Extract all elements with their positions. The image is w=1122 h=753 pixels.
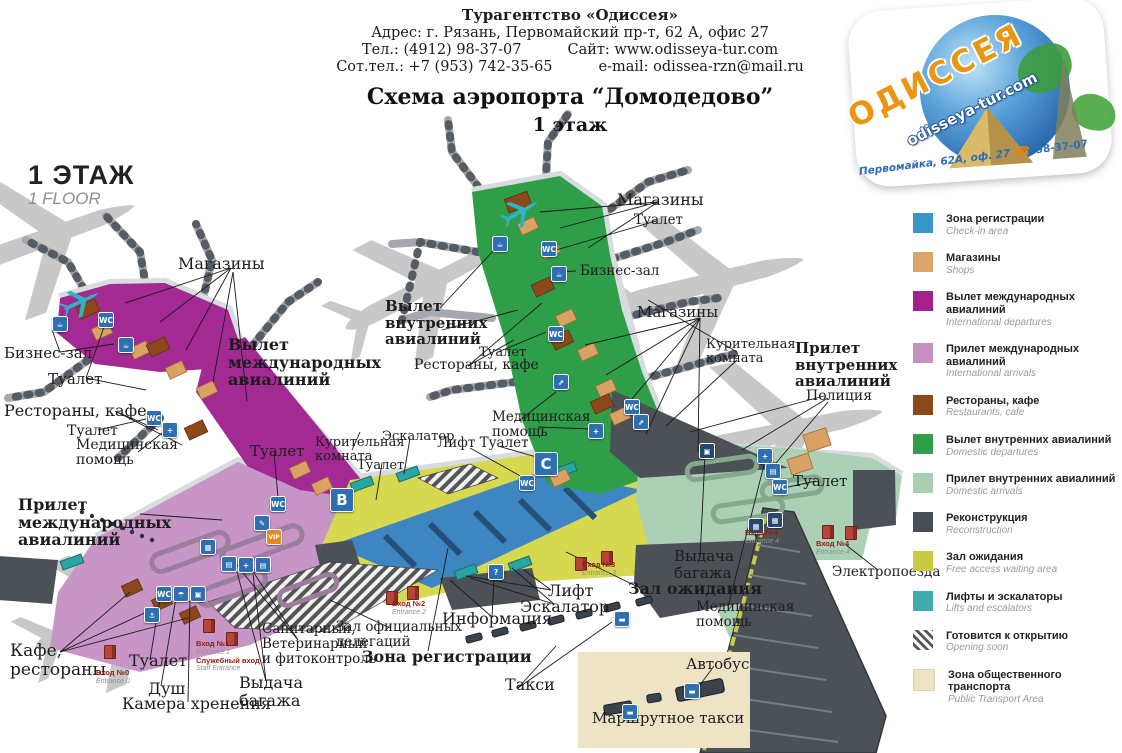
label-dom-departures: Вылет внутренних авиалиний [385, 298, 487, 348]
legend-swatch-hatched [913, 630, 933, 650]
label-intl-arrivals: Прилет международных авиалиний [18, 496, 171, 549]
photo-icon: ▦ [200, 539, 216, 555]
business-lounge-icon: ☕ [551, 266, 567, 282]
map-legend: Зона регистрацииCheck-in area МагазиныSh… [913, 213, 1120, 721]
toilet-icon: WC [548, 326, 564, 342]
business-lounge-icon: ☕ [52, 316, 68, 332]
business-lounge-icon: ☕ [492, 236, 508, 252]
agency-site: Сайт: www.odisseya-tur.com [567, 42, 778, 58]
label-business-dom: Бизнес-зал [580, 264, 659, 279]
sanitary-control-icon: + [238, 557, 254, 573]
medical-icon: + [162, 422, 178, 438]
toilet-icon: WC [156, 586, 172, 602]
legend-item-opening-soon: Готовится к открытиюOpening soon [913, 630, 1120, 655]
legend-item-waiting: Зал ожиданияFree access waiting area [913, 551, 1120, 576]
entrance-0-label: Вход №0 Entrance 0 [96, 669, 130, 686]
floor-ru: 1 ЭТАЖ [28, 160, 134, 191]
medical-icon: + [757, 448, 773, 464]
ferry-icon: ⚓ [144, 607, 160, 623]
agency-address: Адрес: г. Рязань, Первомайский пр-т, 62 … [280, 25, 860, 41]
zone-b-marker: B [330, 488, 354, 512]
escalator-icon: ⇗ [553, 374, 569, 390]
entrance-1-label: Вход №1 Entrance 1 Служебный вход Staff … [196, 640, 260, 673]
entrance-door-icon [845, 526, 857, 540]
label-taxi: Такси [505, 676, 555, 694]
label-smoking-right: Курительная комната [706, 338, 796, 367]
legend-swatch [913, 591, 933, 611]
label-toilet-intl-3: Туалет [250, 443, 304, 460]
label-toilet-dom-arr: Туалет [793, 473, 847, 490]
label-med-intl: Медицинская помощь [76, 438, 178, 469]
legend-swatch [913, 669, 935, 691]
entrance-4-label: Вход №4 Entrance 4 [745, 529, 779, 546]
toilet-icon: WC [624, 399, 640, 415]
entrance-4-label: Вход №4 Entrance 4 [816, 540, 850, 557]
marshrutka-sign-icon: ▬ [622, 704, 638, 720]
airport-scheme-page: Турагентство «Одиссея» Адрес: г. Рязань,… [0, 0, 1122, 753]
floor-en: 1 FLOOR [28, 189, 134, 209]
legend-item-intl-departures: Вылет международных авиалинийInternation… [913, 291, 1120, 328]
information-icon: ? [488, 564, 504, 580]
legend-swatch [913, 473, 933, 493]
label-intl-departures: Вылет международных авиалиний [228, 336, 381, 389]
toilet-icon: WC [270, 496, 286, 512]
baggage-info-icon: ▣ [699, 443, 715, 459]
entrance-door-icon [203, 619, 215, 633]
label-escalator-bottom: Эскалатор [520, 598, 609, 616]
legend-swatch [913, 252, 933, 272]
legend-item-transport: Зона общественного транспортаPublic Tran… [913, 669, 1120, 706]
legend-item-dom-departures: Вылет внутренних авиалинийDomestic depar… [913, 434, 1120, 459]
agency-mobile: Сот.тел.: +7 (953) 742-35-65 [336, 59, 552, 75]
legend-swatch [913, 395, 933, 415]
label-shops-dom-right: Магазины [637, 304, 718, 321]
customs-icon: ▤ [765, 463, 781, 479]
label-police: Полиция [806, 389, 872, 404]
label-marshrutka: Маршрутное такси [592, 710, 744, 727]
toilet-icon: WC [772, 479, 788, 495]
legend-item-shops: МагазиныShops [913, 252, 1120, 277]
agency-name: Турагентство «Одиссея» [280, 6, 860, 24]
entrance-door-icon [822, 525, 834, 539]
label-baggage-claim-right: Выдача багажа [674, 548, 734, 581]
floor-label: 1 ЭТАЖ 1 FLOOR [28, 160, 134, 209]
escalator-icon: ⇗ [633, 414, 649, 430]
legend-item-restaurants: Рестораны, кафеRestaurants, cafe [913, 395, 1120, 420]
business-lounge-icon: ☕ [118, 337, 134, 353]
label-toilet-center: Туалет [357, 459, 404, 473]
agency-phone: Тел.: (4912) 98-37-07 [362, 42, 522, 58]
label-toilet-arrivals: Туалет [129, 652, 187, 670]
toilet-icon: WC [146, 410, 162, 426]
label-escalator-center: Эскалатор [382, 430, 454, 444]
bus-sign-icon: ▬ [684, 683, 700, 699]
label-bus: Автобус [686, 656, 749, 673]
legend-item-lifts: Лифты и эскалаторыLifts and escalators [913, 591, 1120, 616]
entrance-2-label: Вход №2 Entrance 2 [392, 600, 426, 617]
legend-swatch [913, 434, 933, 454]
label-lift-bottom: Лифт [548, 582, 593, 600]
page-title: Схема аэропорта “Домодедово” [280, 84, 860, 110]
label-toilet-dom-top: Туалет [634, 213, 683, 228]
entrance-door-icon [104, 645, 116, 659]
legend-swatch [913, 512, 933, 532]
toilet-icon: WC [541, 241, 557, 257]
agency-logo: ОДИССЕЯ odisseya-tur.com Первомайка, 62А… [838, 0, 1122, 196]
label-dom-arrivals: Прилет внутренних авиалиний [795, 340, 897, 390]
label-toilet-intl-1: Туалет [48, 371, 102, 388]
vet-control-icon: ▤ [255, 557, 271, 573]
legend-item-intl-arrivals: Прилет международных авиалинийInternatio… [913, 343, 1120, 380]
luggage-storage-icon: ▣ [190, 586, 206, 602]
vip-icon: VIP [266, 529, 282, 545]
legend-swatch [913, 213, 933, 233]
legend-item-dom-arrivals: Прилет внутренних авиалинийDomestic arri… [913, 473, 1120, 498]
label-shops-intl: Магазины [178, 255, 265, 273]
label-toilet-dom-1: Туалет [479, 346, 526, 360]
entrance-3-label: Вход №3 Entrance 3 [582, 561, 616, 578]
label-med-right: Медицинская помощь [696, 600, 794, 630]
toilet-icon: WC [98, 312, 114, 328]
label-restaurants-intl: Рестораны, кафе [4, 402, 147, 420]
label-checkin-zone: Зона регистрации [362, 648, 532, 666]
legend-item-reconstruction: РеконструкцияReconstruction [913, 512, 1120, 537]
toilet-icon: WC [519, 475, 535, 491]
label-baggage-claim-left: Выдача багажа [239, 674, 303, 709]
zone-c-marker: C [534, 452, 558, 476]
phone-icon: ☎ [1015, 143, 1032, 159]
entrance-door-icon [407, 586, 419, 600]
agency-email: e-mail: odissea-rzn@mail.ru [599, 59, 804, 75]
legend-swatch [913, 343, 933, 363]
passport-control-icon: ▤ [221, 556, 237, 572]
shower-icon: ☂ [173, 586, 189, 602]
label-waiting-hall: Зал ожидания [628, 580, 762, 598]
header: Турагентство «Одиссея» Адрес: г. Рязань,… [280, 6, 860, 75]
taxi-sign-icon: ▬ [614, 611, 630, 627]
medical-icon: + [588, 423, 604, 439]
label-restaurants-dom: Рестораны, кафе [414, 358, 539, 373]
legend-swatch [913, 551, 933, 571]
label-business-intl: Бизнес-зал [4, 345, 92, 362]
legend-swatch [913, 291, 933, 311]
label-shops-dom-top: Магазины [617, 191, 704, 209]
label-cafe-restaurants: Кафе, рестораны [10, 642, 106, 679]
train-icon: ▦ [767, 512, 783, 528]
legend-item-checkin: Зона регистрацииCheck-in area [913, 213, 1120, 238]
page-subtitle: 1 этаж [280, 114, 860, 136]
